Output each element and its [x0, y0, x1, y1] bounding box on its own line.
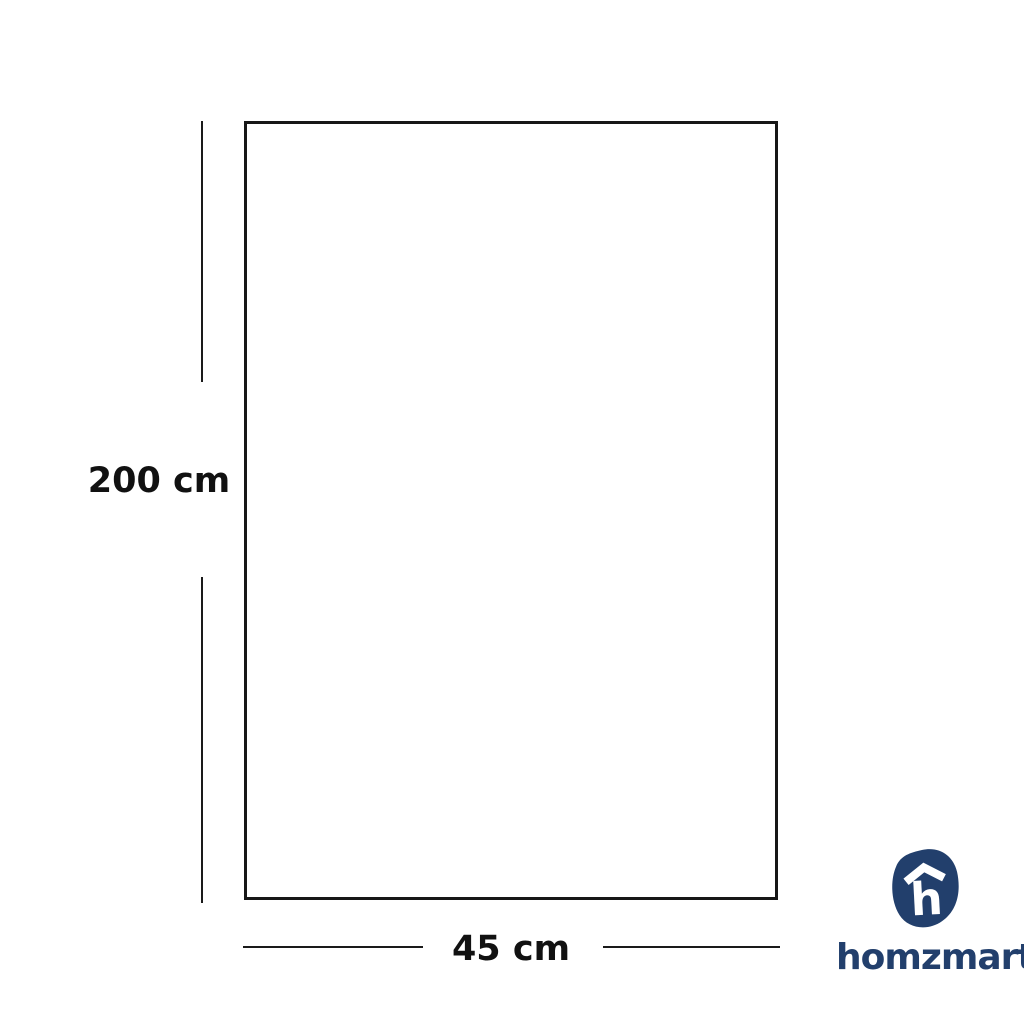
- brand-logo: h homzmart: [836, 848, 1016, 976]
- homzmart-house-h-icon: h: [891, 848, 961, 930]
- width-dimension-label: 45 cm: [452, 929, 570, 969]
- height-dimension-label: 200 cm: [88, 461, 230, 501]
- svg-text:h: h: [909, 872, 944, 927]
- width-dimension-line-left-segment: [243, 946, 423, 948]
- brand-wordmark: homzmart: [836, 940, 1016, 976]
- product-outline-rectangle: [244, 121, 778, 900]
- height-dimension-line-bottom-segment: [201, 577, 203, 903]
- dimension-diagram-canvas: 200 cm 45 cm h homzmart: [0, 0, 1024, 1024]
- width-dimension-line-right-segment: [603, 946, 780, 948]
- height-dimension-line-top-segment: [201, 121, 203, 382]
